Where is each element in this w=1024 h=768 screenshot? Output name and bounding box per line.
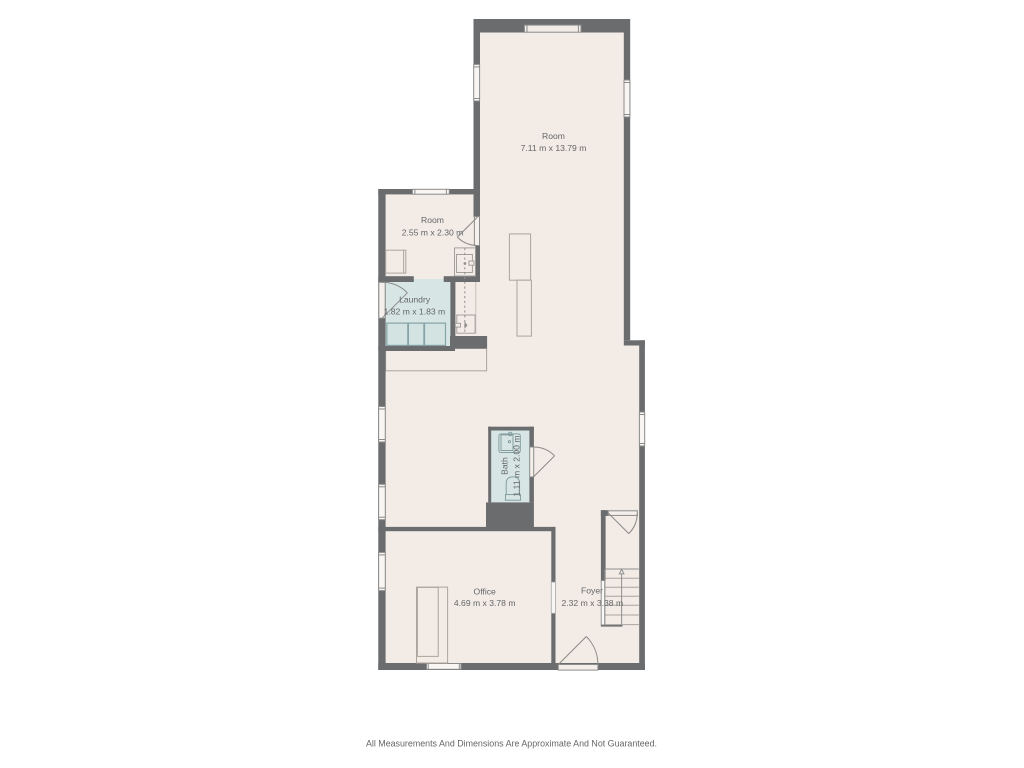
svg-text:1.11 m x 2.00 m: 1.11 m x 2.00 m <box>511 436 521 497</box>
svg-text:All Measurements And Dimension: All Measurements And Dimensions Are Appr… <box>366 738 657 748</box>
svg-text:1.82 m x 1.83 m: 1.82 m x 1.83 m <box>384 306 446 316</box>
svg-text:7.11 m x 13.79 m: 7.11 m x 13.79 m <box>521 143 587 153</box>
svg-text:Room: Room <box>421 215 444 225</box>
svg-text:2.32 m x 3.38 m: 2.32 m x 3.38 m <box>561 598 623 608</box>
svg-text:Office: Office <box>474 586 497 596</box>
svg-text:2.55 m x 2.30 m: 2.55 m x 2.30 m <box>402 227 464 237</box>
svg-text:4.69 m x 3.78 m: 4.69 m x 3.78 m <box>454 598 516 608</box>
svg-text:Laundry: Laundry <box>399 294 431 304</box>
svg-text:Foyer: Foyer <box>581 585 603 595</box>
svg-text:Bath: Bath <box>500 457 510 475</box>
svg-text:Room: Room <box>542 131 565 141</box>
